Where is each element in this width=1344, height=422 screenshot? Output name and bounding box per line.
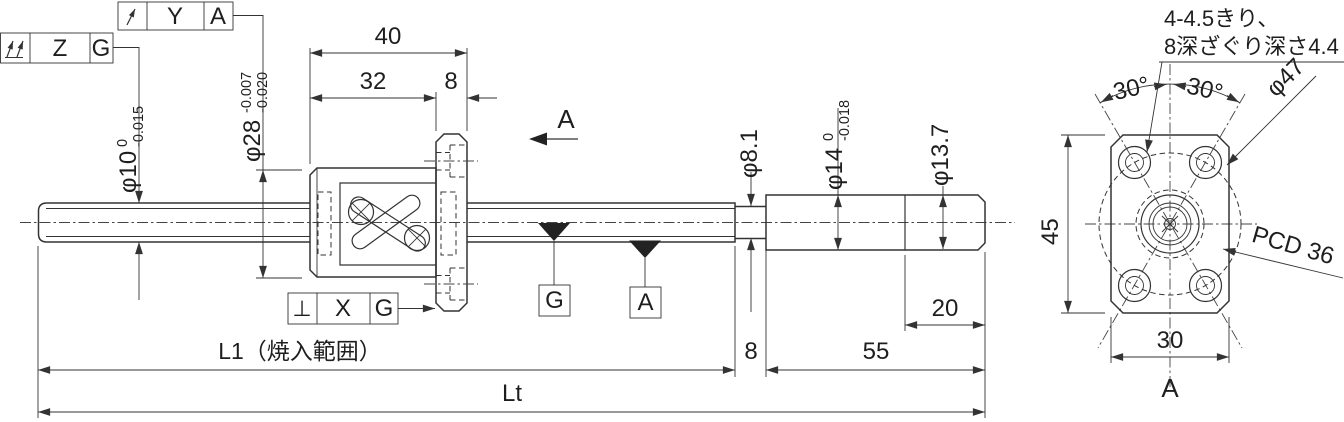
dim-label-pcd36: PCD 36 <box>1249 221 1337 270</box>
dim-label-phi14: φ14 <box>821 148 848 190</box>
tolerance-frame-bottom: ⊥ X G <box>288 293 435 324</box>
dim-label-phi47: φ47 <box>1261 53 1310 102</box>
section-arrow-label: A <box>557 104 575 134</box>
tolerance-frame-left: Z G <box>1 33 140 63</box>
dimensions-top: 40 32 8 <box>310 23 497 164</box>
dim-label-30: 30 <box>1157 327 1184 354</box>
dim-label-phi28: φ28 <box>239 120 266 162</box>
datum-g-label: G <box>545 287 564 314</box>
dim-label-l1: L1（焼入範囲） <box>218 338 382 364</box>
flange-hidden-bore <box>441 192 456 255</box>
dim-label-20: 20 <box>932 295 959 322</box>
datum-target-a: A <box>629 241 661 319</box>
dim-label-55: 55 <box>863 338 890 365</box>
dim-phi14-upper-tol: 0 <box>821 133 837 141</box>
dim-phi10-lower-tol: -0.015 <box>131 106 147 147</box>
dimension-phi10: φ10 0 -0.015 <box>115 48 147 301</box>
dim-label-8-top: 8 <box>444 68 457 95</box>
frame-datum-label: G <box>92 35 111 62</box>
dim-label-8-bottom: 8 <box>744 338 757 365</box>
dimension-phi8-1: φ8.1 <box>736 129 763 312</box>
view-a-label: A <box>1161 373 1179 403</box>
perpendicularity-icon: ⊥ <box>292 296 311 321</box>
dimension-pcd36: PCD 36 <box>1223 221 1343 278</box>
dim-label-phi13-7: φ13.7 <box>927 124 954 186</box>
datum-triangle <box>538 223 570 241</box>
frame-datum-label: A <box>210 3 226 30</box>
dimension-phi28: φ28 -0.007 -0.020 <box>239 72 302 278</box>
dim-label-phi8-1: φ8.1 <box>736 129 763 178</box>
dim-phi28-lower-tol: -0.020 <box>255 72 271 113</box>
dim-label-32: 32 <box>360 68 387 95</box>
frame-leader <box>113 48 139 49</box>
section-arrowhead-icon <box>529 133 547 146</box>
angle-label-left: 30° <box>1111 71 1152 105</box>
note-line-1: 4-4.5きり、 <box>1164 6 1279 31</box>
dim-phi28-upper-tol: -0.007 <box>239 72 255 113</box>
dimension-phi47: φ47 <box>1227 53 1316 165</box>
dimensions-bottom: L1（焼入範囲） 8 55 Lt <box>38 244 985 418</box>
dim-label-40: 40 <box>375 23 402 50</box>
ballscrew-drawing: G A A Y A <box>0 0 1344 422</box>
angle-arrow <box>1101 96 1113 103</box>
frame-feature-label: Y <box>167 3 183 30</box>
dimension-phi14: φ14 0 -0.018 <box>821 100 853 250</box>
section-arrow: A <box>529 104 578 146</box>
datum-a-label: A <box>637 289 653 316</box>
circular-runout-icon <box>127 9 135 25</box>
dim-label-lt: Lt <box>502 380 522 407</box>
frame-datum-label: G <box>375 295 394 322</box>
nut-hidden-bore <box>318 192 331 255</box>
dimension-phi13-7: φ13.7 <box>927 124 954 249</box>
angle-arrow <box>1227 96 1239 103</box>
dimension-20: 20 <box>905 255 985 331</box>
frame-feature-label: X <box>335 295 351 322</box>
note-leader <box>1147 62 1162 152</box>
dim-label-phi10: φ10 <box>115 151 142 193</box>
total-runout-icon <box>5 41 23 58</box>
frame-feature-label: Z <box>53 35 68 62</box>
nut-recess <box>340 183 436 265</box>
dim-phi14-lower-tol: -0.018 <box>837 100 853 141</box>
main-view: G A A Y A <box>1 2 1016 418</box>
end-view: 45 30 A 30° 30° 4-4.5きり、 <box>1037 6 1344 403</box>
angle-label-right: 30° <box>1184 72 1225 106</box>
datum-triangle <box>629 241 661 259</box>
note-line-2: 8深ざぐり深さ4.4 <box>1164 34 1339 59</box>
dim-label-45: 45 <box>1037 218 1064 245</box>
dim-phi10-upper-tol: 0 <box>115 139 131 147</box>
counterbore-note: 4-4.5きり、 8深ざぐり深さ4.4 <box>1147 6 1344 152</box>
technical-drawing-page: G A A Y A <box>0 0 1344 422</box>
